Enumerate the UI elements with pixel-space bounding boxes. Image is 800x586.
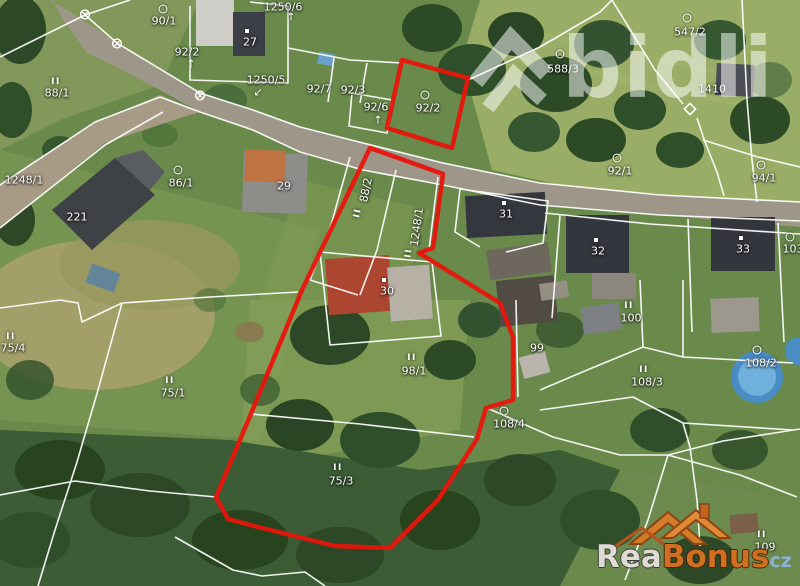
aerial-cadastral-map[interactable]: 1250/6↑90/192/2↑88/1II1250/5↙92/792/392/… [0, 0, 800, 586]
dirt-patch [236, 322, 264, 342]
map-canvas[interactable] [0, 0, 800, 586]
